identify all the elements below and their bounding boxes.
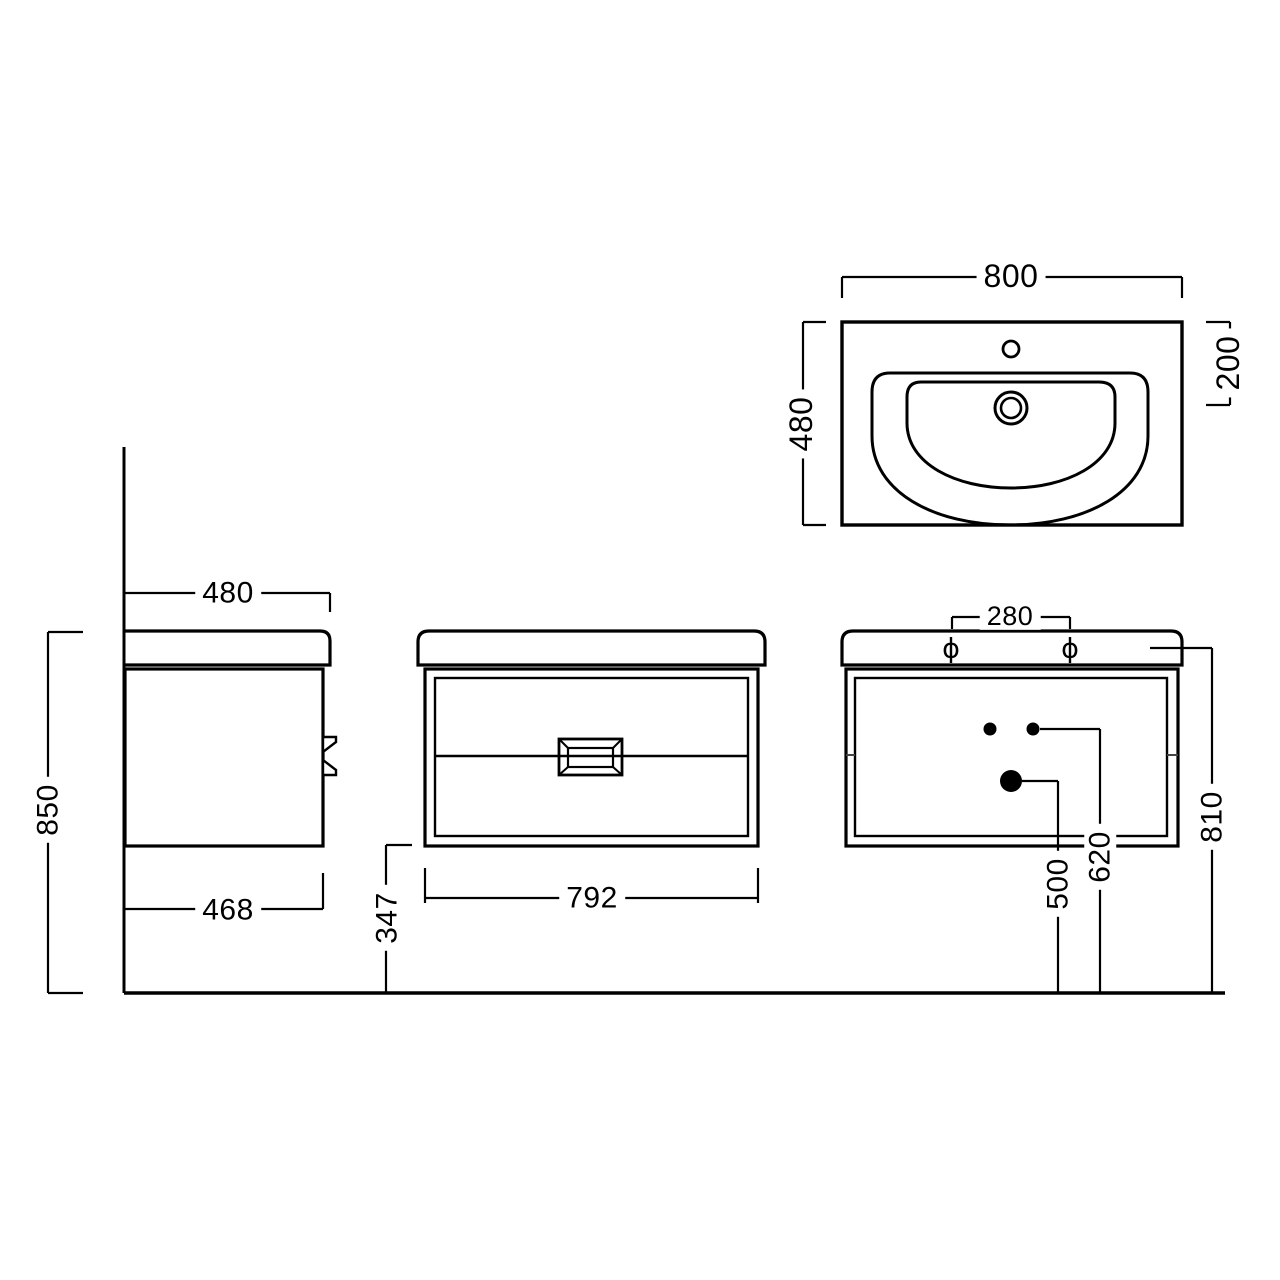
side-view [124,631,336,846]
dim-supply-height-label: 620 [1084,824,1116,890]
dim-worktop-height-label: 810 [1196,784,1228,850]
fixing-hole-left [984,723,997,736]
overflow-hole [1003,341,1019,357]
side-handle-lower [323,760,336,775]
diameter-mark-icon-right: ϕ [1061,636,1079,663]
dim-cabinet-depth-label: 468 [195,894,261,926]
tap-hole-inner [1001,398,1021,418]
technical-drawing: 800 480 200 480 850 468 347 792 280 500 … [0,0,1280,1280]
side-handle-upper [323,737,336,752]
side-basin-slab [124,631,330,665]
dim-cabinet-width-label: 792 [559,882,625,914]
front-basin-slab [418,631,765,665]
basin-plan-view [842,322,1182,525]
rear-basin-slab [842,631,1182,665]
dim-hanger-spacing-label: 280 [980,602,1041,630]
rear-view [842,631,1182,846]
side-cabinet [125,669,323,846]
rear-back-panel [855,678,1167,836]
dim-rim-height-label: 850 [32,777,64,843]
dim-clearance-label: 347 [371,885,403,951]
dim-basin-depth-label: 480 [785,390,819,459]
drain-hole [1000,770,1022,792]
dim-tap-offset-label: 200 [1212,329,1246,398]
diameter-mark-icon-left: ϕ [942,636,960,663]
drawing-linework [0,0,1280,1280]
dim-basin-width-label: 800 [977,260,1046,294]
handle-inner [568,748,613,767]
dim-side-depth-label: 480 [195,577,261,609]
rear-cabinet [846,669,1178,846]
fixing-hole-right [1027,723,1040,736]
dim-drain-height-label: 500 [1042,851,1074,917]
front-cabinet [425,669,758,846]
front-view [418,631,765,846]
